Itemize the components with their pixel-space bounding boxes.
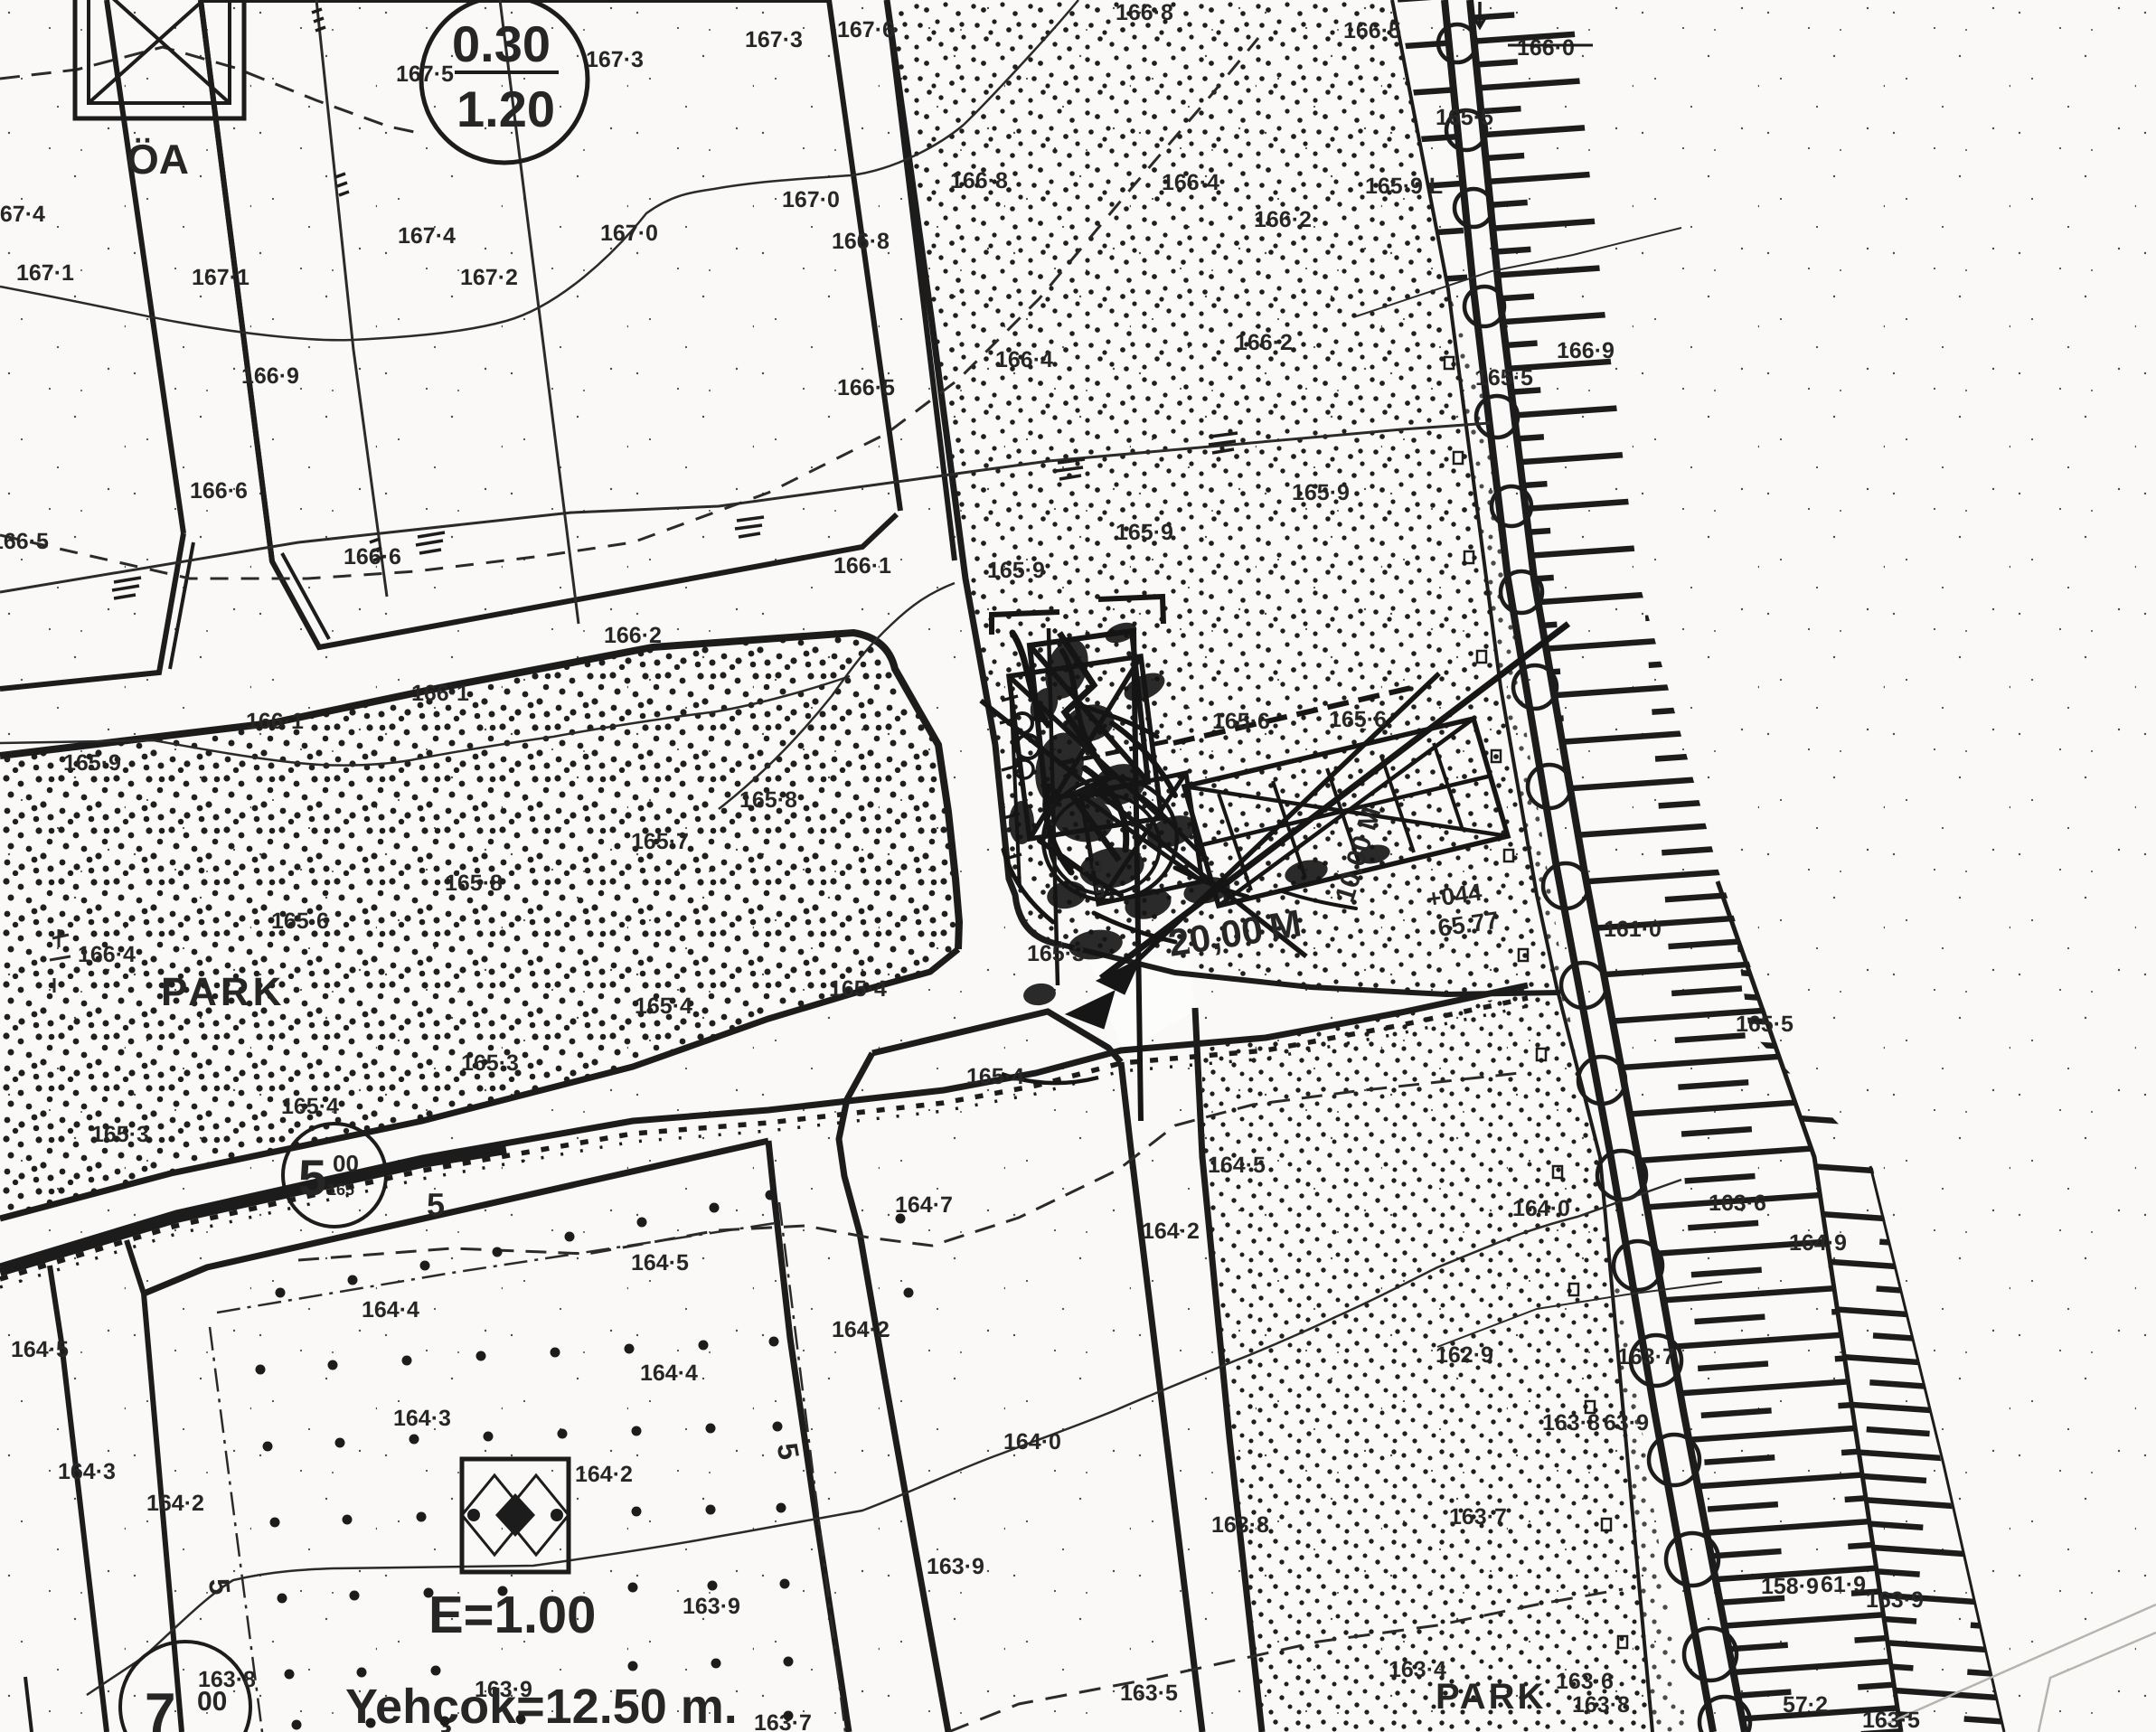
svg-text:5: 5 — [427, 1186, 445, 1223]
svg-text:PARK: PARK — [161, 970, 285, 1014]
svg-text:163·8: 163·8 — [198, 1667, 256, 1692]
svg-text:163·7: 163·7 — [1617, 1344, 1675, 1370]
svg-text:166·4: 166·4 — [1162, 170, 1219, 195]
svg-text:164·0: 164·0 — [1512, 1196, 1570, 1221]
svg-text:163·7: 163·7 — [754, 1710, 812, 1732]
svg-text:166·6: 166·6 — [344, 544, 401, 569]
svg-text:163·8: 163·8 — [1542, 1410, 1600, 1435]
svg-text:167·5: 167·5 — [396, 61, 454, 87]
svg-text:166·5: 166·5 — [0, 529, 49, 554]
svg-text:166·2: 166·2 — [1254, 207, 1312, 232]
svg-text:166·2: 166·2 — [604, 623, 662, 648]
svg-text:166·1: 166·1 — [411, 681, 469, 706]
svg-text:165·6: 165·6 — [271, 908, 329, 934]
svg-text:164·5: 164·5 — [11, 1337, 69, 1362]
svg-text:165·6: 165·6 — [1329, 707, 1387, 732]
svg-text:165·3: 165·3 — [91, 1122, 149, 1147]
svg-text:7: 7 — [145, 1682, 175, 1732]
svg-text:167·1: 167·1 — [16, 260, 74, 286]
svg-text:164·3: 164·3 — [393, 1406, 451, 1431]
svg-text:165·4: 165·4 — [635, 993, 692, 1019]
svg-text:5: 5 — [202, 1577, 236, 1596]
svg-text:166·8: 166·8 — [1116, 0, 1173, 25]
svg-text:166·8: 166·8 — [832, 229, 890, 254]
svg-text:165·7: 165·7 — [631, 829, 689, 854]
svg-text:166·6: 166·6 — [190, 478, 248, 504]
svg-text:165·5: 165·5 — [1475, 365, 1533, 391]
svg-text:165·5: 165·5 — [1736, 1012, 1794, 1037]
svg-text:164·0: 164·0 — [1003, 1429, 1061, 1454]
svg-text:166·5: 166·5 — [1343, 18, 1401, 43]
svg-text:163·9: 163·9 — [1866, 1587, 1924, 1613]
svg-text:166·1: 166·1 — [833, 553, 891, 579]
svg-text:164·3: 164·3 — [58, 1459, 116, 1484]
svg-text:PARK: PARK — [1436, 1677, 1546, 1717]
svg-text:00: 00 — [333, 1150, 359, 1177]
svg-text:165·9: 165·9 — [1116, 520, 1173, 545]
svg-text:164·2: 164·2 — [832, 1317, 890, 1342]
svg-text:167·3: 167·3 — [586, 47, 644, 72]
svg-text:164·2: 164·2 — [575, 1462, 633, 1487]
svg-text:164·2: 164·2 — [146, 1491, 204, 1516]
svg-text:0.30: 0.30 — [452, 15, 551, 72]
svg-text:165·8: 165·8 — [445, 871, 503, 896]
svg-text:166·0: 166·0 — [1517, 35, 1575, 61]
svg-text:165·9 L: 165·9 L — [1365, 174, 1443, 199]
svg-text:40: 40 — [1080, 855, 1105, 880]
svg-text:166·8: 166·8 — [950, 168, 1008, 193]
svg-text:167·1: 167·1 — [192, 265, 249, 290]
svg-text:165·8: 165·8 — [739, 787, 797, 813]
svg-text:63·9: 63·9 — [1604, 1410, 1649, 1435]
svg-text:163·6: 163·6 — [1709, 1191, 1766, 1216]
svg-text:167·0: 167·0 — [600, 221, 658, 246]
svg-text:163·5: 163·5 — [1120, 1680, 1178, 1706]
svg-text:167·4: 167·4 — [398, 223, 456, 249]
svg-text:161·0: 161·0 — [1604, 917, 1662, 942]
svg-text:165·5: 165·5 — [1436, 105, 1493, 130]
svg-text:164·5: 164·5 — [1208, 1153, 1266, 1178]
svg-text:165·6: 165·6 — [1212, 709, 1270, 734]
svg-text:166·4: 166·4 — [995, 347, 1053, 372]
svg-text:167·6: 167·6 — [837, 17, 895, 42]
svg-text:163·8: 163·8 — [1211, 1512, 1269, 1538]
svg-text:165·4: 165·4 — [966, 1064, 1024, 1089]
svg-text:166·4: 166·4 — [78, 942, 136, 967]
svg-text:E=1.00: E=1.00 — [428, 1586, 596, 1644]
svg-text:5: 5 — [298, 1149, 326, 1206]
svg-text:163·8: 163·8 — [1572, 1692, 1630, 1718]
svg-text:61·9: 61·9 — [1821, 1572, 1866, 1597]
svg-text:165·3: 165·3 — [461, 1050, 519, 1076]
svg-text:1.20: 1.20 — [457, 80, 555, 137]
svg-text:164·2: 164·2 — [1142, 1219, 1200, 1244]
svg-text:163·6: 163·6 — [1556, 1669, 1614, 1694]
svg-text:167·2: 167·2 — [460, 265, 518, 290]
svg-text:165: 165 — [327, 1181, 354, 1199]
svg-text:57·2: 57·2 — [1783, 1692, 1828, 1718]
svg-text:164·4: 164·4 — [362, 1297, 419, 1323]
svg-text:164·4: 164·4 — [640, 1360, 698, 1386]
svg-text:163·9: 163·9 — [683, 1594, 740, 1619]
svg-text:162·9: 162·9 — [1436, 1342, 1493, 1368]
svg-text:167·0: 167·0 — [782, 187, 840, 212]
svg-text:166·2: 166·2 — [1235, 330, 1293, 355]
svg-text:165·9: 165·9 — [987, 558, 1045, 583]
svg-text:166·9: 166·9 — [241, 363, 299, 389]
svg-text:158·9: 158·9 — [1761, 1574, 1819, 1599]
svg-text:166·5: 166·5 — [837, 375, 895, 400]
svg-text:164·9: 164·9 — [1789, 1230, 1847, 1256]
svg-text:165·3: 165·3 — [1027, 941, 1085, 966]
svg-text:ÖA: ÖA — [127, 136, 189, 183]
svg-text:167·4: 167·4 — [0, 202, 45, 227]
svg-text:166·9: 166·9 — [1557, 338, 1615, 363]
svg-text:167·3: 167·3 — [745, 27, 803, 52]
svg-text:165·9: 165·9 — [63, 750, 121, 776]
svg-text:Yehçok=12.50 m.: Yehçok=12.50 m. — [345, 1680, 738, 1732]
svg-text:163·7: 163·7 — [1449, 1504, 1507, 1530]
svg-text:165·4: 165·4 — [281, 1094, 339, 1119]
svg-text:165·4: 165·4 — [829, 976, 887, 1002]
svg-text:165·9: 165·9 — [1292, 480, 1350, 505]
svg-text:163·5: 163·5 — [1862, 1708, 1920, 1732]
svg-text:163·9: 163·9 — [927, 1554, 984, 1579]
svg-text:164·7: 164·7 — [895, 1192, 953, 1218]
svg-text:164·5: 164·5 — [631, 1250, 689, 1275]
svg-text:166·1: 166·1 — [246, 709, 304, 734]
